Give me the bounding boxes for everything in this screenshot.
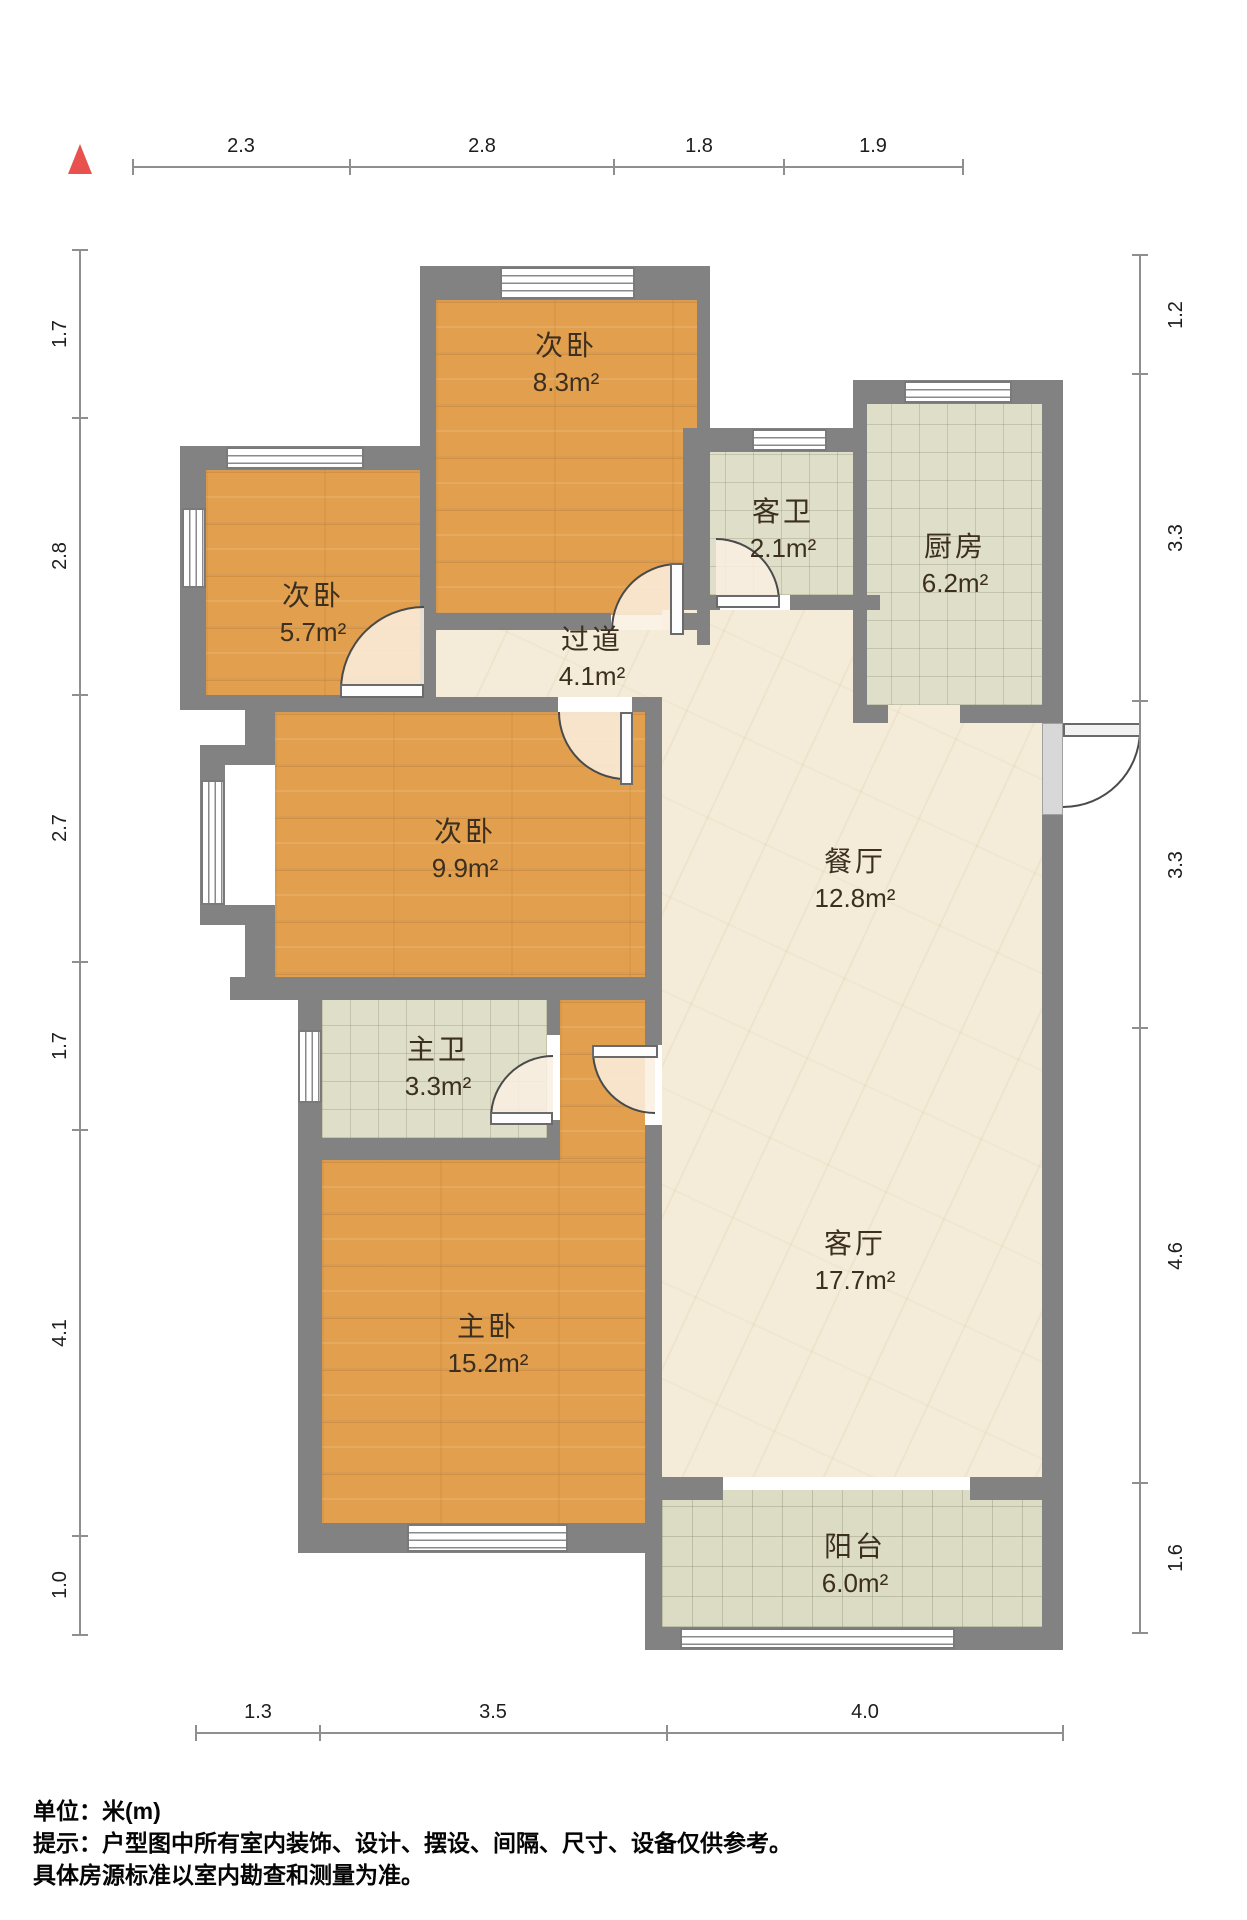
wall xyxy=(1042,815,1063,1650)
dimension-label: 3.5 xyxy=(463,1700,523,1724)
room-label-bedroom-top: 次卧 8.3m² xyxy=(486,332,646,395)
tick xyxy=(349,159,351,175)
room-label-dining: 餐厅 12.8m² xyxy=(775,848,935,911)
room-name: 主卧 xyxy=(408,1313,568,1341)
room-label-master-bedroom: 主卧 15.2m² xyxy=(408,1313,568,1376)
door-leaf-bedroom-top xyxy=(670,563,684,635)
room-label-balcony: 阳台 6.0m² xyxy=(775,1533,935,1596)
room-label-master-bath: 主卫 3.3m² xyxy=(358,1036,518,1099)
room-name: 客卫 xyxy=(703,498,863,526)
wall xyxy=(970,1477,1042,1500)
room-name: 次卧 xyxy=(233,582,393,610)
window xyxy=(201,780,225,905)
dimension-line-top xyxy=(133,166,963,168)
wall xyxy=(200,745,275,765)
room-area: 5.7m² xyxy=(233,619,393,645)
room-label-bedroom-left: 次卧 5.7m² xyxy=(233,582,393,645)
room-floor-dining-living xyxy=(662,610,1042,1477)
tick xyxy=(72,961,88,963)
north-arrow-icon xyxy=(68,144,92,174)
wall xyxy=(683,428,697,610)
dimension-label: 1.0 xyxy=(48,1561,72,1609)
wall xyxy=(683,595,720,610)
room-name: 厨房 xyxy=(875,533,1035,561)
tick xyxy=(1132,373,1148,375)
dimension-label: 4.0 xyxy=(835,1700,895,1724)
tick xyxy=(666,1725,668,1741)
wall xyxy=(547,1000,560,1035)
entry-threshold xyxy=(1042,723,1063,815)
tick xyxy=(613,159,615,175)
window xyxy=(500,267,635,299)
dimension-label: 3.3 xyxy=(1164,514,1188,562)
room-label-hallway: 过道 4.1m² xyxy=(512,626,672,689)
floor-plan-canvas: 次卧 8.3m² 次卧 5.7m² 客卫 2.1m² 厨房 6.2m² 过道 4… xyxy=(0,0,1247,1920)
room-area: 6.0m² xyxy=(775,1570,935,1596)
tick xyxy=(72,1129,88,1131)
wall xyxy=(662,1477,723,1500)
tick xyxy=(72,417,88,419)
wall xyxy=(697,266,710,645)
room-area: 17.7m² xyxy=(775,1267,935,1293)
tick xyxy=(1132,254,1148,256)
tick xyxy=(132,159,134,175)
window xyxy=(904,381,1012,403)
door-leaf-bedroom-left xyxy=(340,684,424,698)
wall xyxy=(645,1125,662,1553)
wall xyxy=(1042,380,1063,723)
wall xyxy=(230,977,662,1000)
tick xyxy=(72,249,88,251)
tick xyxy=(195,1725,197,1741)
wall xyxy=(632,697,662,712)
room-area: 15.2m² xyxy=(408,1350,568,1376)
tick xyxy=(1132,700,1148,702)
dimension-label: 1.2 xyxy=(1164,291,1188,339)
room-area: 12.8m² xyxy=(775,885,935,911)
room-name: 次卧 xyxy=(385,818,545,846)
footer-note-line1: 提示：户型图中所有室内装饰、设计、摆设、间隔、尺寸、设备仅供参考。 xyxy=(33,1824,792,1858)
room-label-living: 客厅 17.7m² xyxy=(775,1230,935,1293)
tick xyxy=(1132,1632,1148,1634)
room-name: 阳台 xyxy=(775,1533,935,1561)
tick xyxy=(72,1634,88,1636)
door-leaf-entry xyxy=(1063,723,1141,737)
dimension-line-left xyxy=(79,250,81,1635)
dimension-label: 1.6 xyxy=(1164,1534,1188,1582)
dimension-label: 1.7 xyxy=(48,310,72,358)
wall xyxy=(547,1120,560,1160)
door-leaf-guest-bath xyxy=(716,595,780,608)
dimension-label: 1.8 xyxy=(669,134,729,158)
wall xyxy=(684,613,700,630)
tick xyxy=(72,694,88,696)
footer-note-line2: 具体房源标准以室内勘查和测量为准。 xyxy=(33,1856,424,1890)
dimension-label: 2.3 xyxy=(211,134,271,158)
room-label-kitchen: 厨房 6.2m² xyxy=(875,533,1035,596)
tick xyxy=(962,159,964,175)
dimension-label: 2.7 xyxy=(48,804,72,852)
room-name: 客厅 xyxy=(775,1230,935,1258)
dimension-line-right xyxy=(1139,255,1141,1633)
footer-unit-label: 单位：米(m) xyxy=(33,1792,161,1826)
room-area: 4.1m² xyxy=(512,663,672,689)
room-area: 2.1m² xyxy=(703,535,863,561)
window xyxy=(226,447,364,469)
tick xyxy=(319,1725,321,1741)
door-leaf-master-bath xyxy=(490,1112,553,1125)
dimension-label: 2.8 xyxy=(48,532,72,580)
room-area: 8.3m² xyxy=(486,369,646,395)
wall xyxy=(245,697,558,712)
dimension-label: 4.1 xyxy=(48,1309,72,1357)
door-leaf-bedroom-mid xyxy=(620,712,633,785)
dimension-label: 2.8 xyxy=(452,134,512,158)
dimension-label: 3.3 xyxy=(1164,841,1188,889)
door-arc-entry xyxy=(1063,730,1141,808)
window xyxy=(680,1628,955,1649)
room-name: 主卫 xyxy=(358,1036,518,1064)
dimension-label: 1.9 xyxy=(843,134,903,158)
room-area: 9.9m² xyxy=(385,855,545,881)
window xyxy=(752,429,827,451)
tick xyxy=(1132,1482,1148,1484)
dimension-label: 4.6 xyxy=(1164,1232,1188,1280)
room-name: 过道 xyxy=(512,626,672,654)
window xyxy=(298,1030,322,1103)
room-label-guest-bath: 客卫 2.1m² xyxy=(703,498,863,561)
tick xyxy=(72,1535,88,1537)
wall xyxy=(645,712,662,1045)
window xyxy=(407,1524,568,1552)
dimension-line-bottom xyxy=(196,1732,1063,1734)
dimension-label: 1.7 xyxy=(48,1022,72,1070)
tick xyxy=(1062,1725,1064,1741)
wall xyxy=(298,1138,560,1160)
room-name: 餐厅 xyxy=(775,848,935,876)
room-name: 次卧 xyxy=(486,332,646,360)
window xyxy=(182,508,206,588)
dimension-label: 1.3 xyxy=(228,1700,288,1724)
room-area: 3.3m² xyxy=(358,1073,518,1099)
door-leaf-master-bedroom xyxy=(592,1045,658,1058)
tick xyxy=(1132,1027,1148,1029)
room-area: 6.2m² xyxy=(875,570,1035,596)
tick xyxy=(783,159,785,175)
wall xyxy=(853,705,888,723)
room-label-bedroom-mid: 次卧 9.9m² xyxy=(385,818,545,881)
